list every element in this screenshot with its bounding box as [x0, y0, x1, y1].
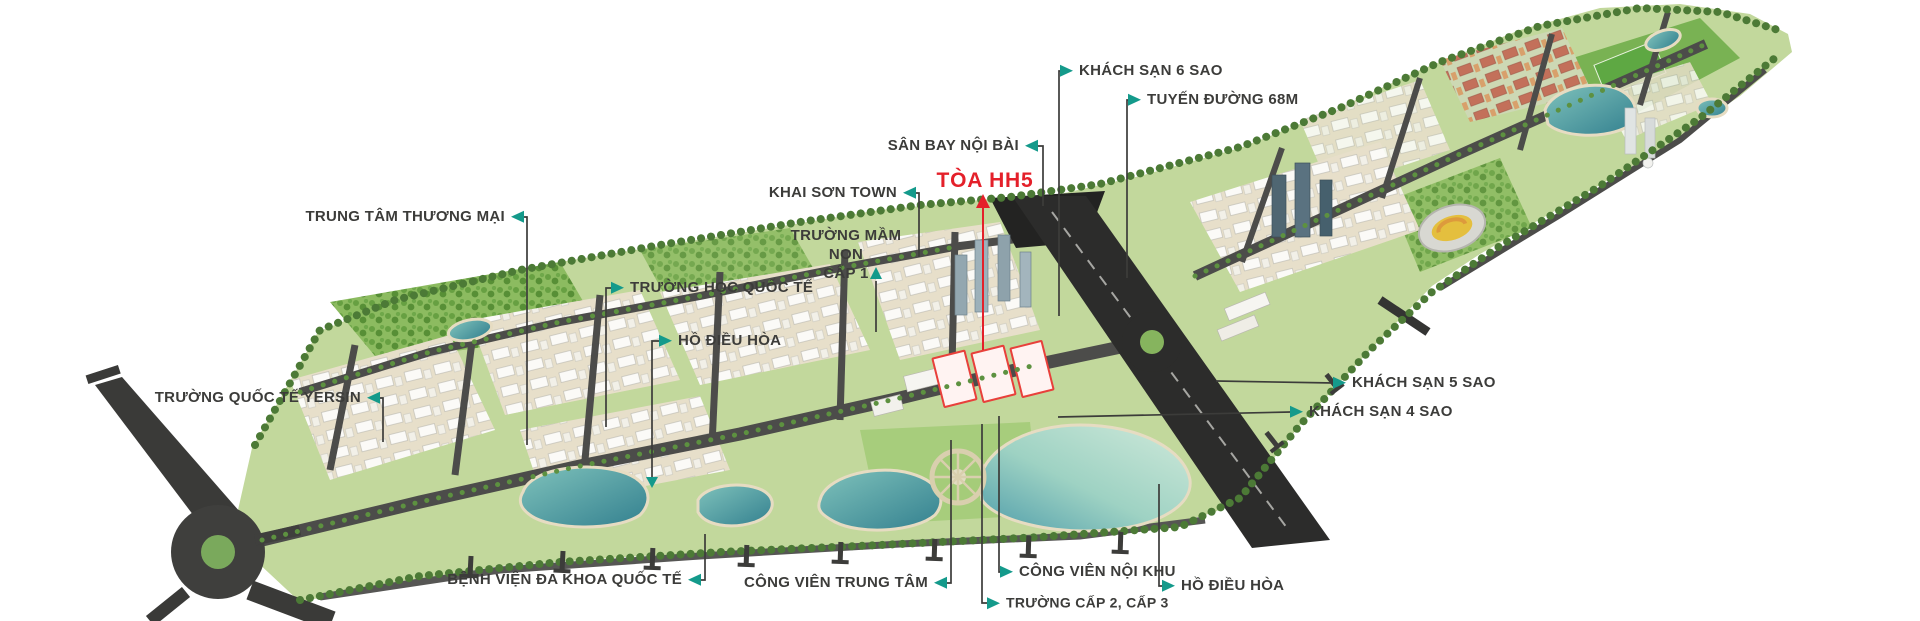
arrow-left-icon — [1025, 140, 1038, 152]
arrow-left-icon — [934, 577, 947, 589]
arrow-right-icon — [1000, 566, 1013, 578]
label-khai-son-town: KHAI SƠN TOWN — [769, 185, 916, 202]
arrow-left-icon — [903, 187, 916, 199]
arrow-right-icon — [987, 597, 1000, 609]
arrow-right-icon — [659, 335, 672, 347]
label-benh-vien-da-khoa-quoc-te: BỆNH VIỆN ĐA KHOA QUỐC TẾ — [447, 572, 701, 589]
arrow-left-icon — [511, 211, 524, 223]
arrow-down-icon — [646, 477, 658, 488]
arrow-right-icon — [1290, 406, 1303, 418]
label-khach-san-5-sao: KHÁCH SẠN 5 SAO — [1333, 375, 1496, 392]
label-cong-vien-noi-khu: CÔNG VIÊN NỘI KHU — [1000, 564, 1176, 581]
label-cong-vien-trung-tam: CÔNG VIÊN TRUNG TÂM — [744, 575, 947, 592]
label-toa-hh5: TÒA HH5 — [937, 169, 1034, 193]
label-ho-dieu-hoa-tay: HỒ ĐIỀU HÒA — [659, 333, 781, 350]
arrow-up-red-icon — [976, 194, 990, 208]
label-ho-dieu-hoa-dong: HỒ ĐIỀU HÒA — [1162, 578, 1284, 595]
masterplan-page: TRUNG TÂM THƯƠNG MẠI TRƯỜNG HỌC QUỐC TẾ … — [0, 0, 1920, 621]
arrow-right-icon — [1162, 580, 1175, 592]
label-truong-quoc-te-yersin: TRƯỜNG QUỐC TẾ YERSIN — [155, 390, 380, 407]
label-khach-san-4-sao: KHÁCH SẠN 4 SAO — [1290, 404, 1453, 421]
arrow-left-icon — [367, 392, 380, 404]
arrow-left-icon — [688, 574, 701, 586]
label-trung-tam-thuong-mai: TRUNG TÂM THƯƠNG MẠI — [305, 209, 524, 226]
label-truong-mam-non-cap-1: TRƯỜNG MẦM NON CẤP 1 — [776, 227, 916, 283]
arrow-up-icon — [870, 267, 882, 279]
arrow-right-icon — [611, 282, 624, 294]
label-truong-cap-2-cap-3: TRƯỜNG CẤP 2, CẤP 3 — [987, 595, 1169, 610]
arrow-right-icon — [1333, 377, 1346, 389]
arrow-right-icon — [1128, 94, 1141, 106]
leader-lines — [0, 0, 1920, 621]
label-san-bay-noi-bai: SÂN BAY NỘI BÀI — [888, 138, 1038, 155]
label-tuyen-duong-68m: TUYẾN ĐƯỜNG 68M — [1128, 92, 1298, 109]
label-khach-san-6-sao: KHÁCH SẠN 6 SAO — [1060, 63, 1223, 80]
arrow-right-icon — [1060, 65, 1073, 77]
